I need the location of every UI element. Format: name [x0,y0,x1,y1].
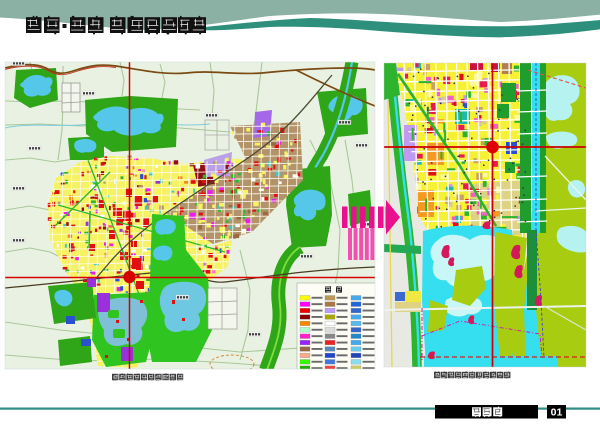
svg-text:01: 01 [551,407,563,419]
